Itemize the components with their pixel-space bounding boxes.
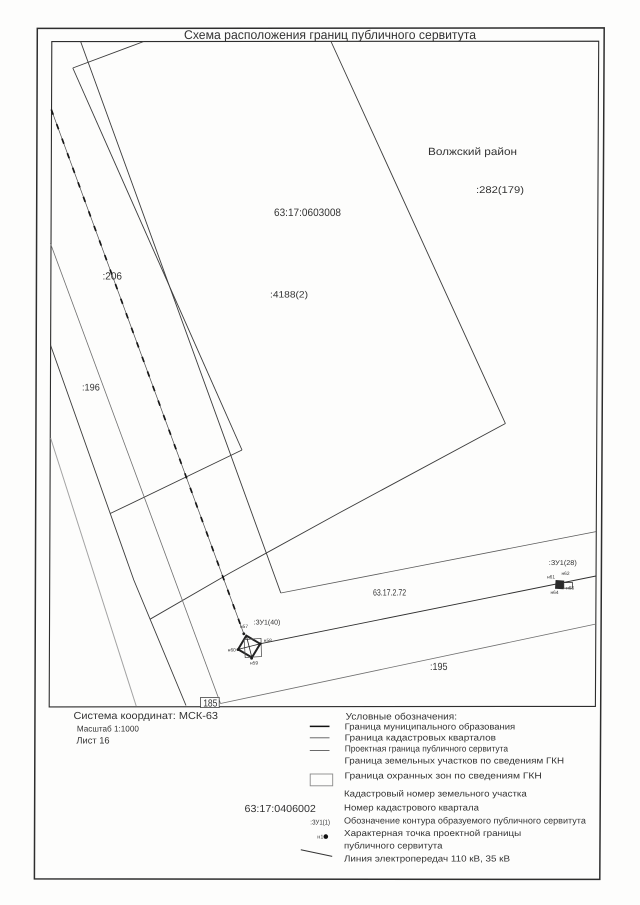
svg-text:н60: н60 [228,648,236,654]
svg-text:Волжский район: Волжский район [428,146,517,158]
svg-text:Граница муниципального образов: Граница муниципального образования [345,721,516,731]
svg-text:н64: н64 [551,590,559,596]
svg-text::ЗУ1(28): :ЗУ1(28) [549,559,577,567]
svg-text:Условные обозначения:: Условные обозначения: [346,710,457,721]
svg-text:н1: н1 [317,835,323,841]
svg-text:63.17.2.72: 63.17.2.72 [373,587,406,597]
svg-text:н57: н57 [240,624,248,630]
svg-text:63:17:0603008: 63:17:0603008 [274,207,341,219]
svg-text:Граница земельных участков по: Граница земельных участков по сведениям … [345,756,565,766]
svg-text:н59: н59 [250,661,258,667]
svg-text:Проектная граница публичного с: Проектная граница публичного сервитута [345,743,508,753]
svg-text::196: :196 [82,382,100,393]
svg-text:н58: н58 [264,638,272,644]
svg-text::ЗУ1(1): :ЗУ1(1) [310,819,330,827]
svg-text:Линия электропередач 110 кВ, 3: Линия электропередач 110 кВ, 35 кВ [344,853,510,863]
svg-text:63:17:0406002: 63:17:0406002 [245,804,317,815]
svg-text::195: :195 [430,662,448,673]
svg-text:н61: н61 [547,575,555,581]
svg-text::206: :206 [103,272,123,283]
svg-text:н62: н62 [562,571,570,577]
svg-text:н63: н63 [566,586,574,592]
svg-text:публичного сервитута: публичного сервитута [344,841,443,851]
svg-text:Характерная точка проектной гр: Характерная точка проектной границы [344,828,521,838]
svg-text:Схема расположения границ публ: Схема расположения границ публичного сер… [184,28,476,42]
svg-text:Граница кадастровых кварталов: Граница кадастровых кварталов [345,732,497,742]
svg-text::4188(2): :4188(2) [270,289,308,299]
svg-text::ЗУ1(40): :ЗУ1(40) [254,618,281,626]
svg-text:Система координат: МСК-63: Система координат: МСК-63 [74,711,219,722]
svg-text:185: 185 [203,698,217,709]
svg-text:Номер кадастрового квартала: Номер кадастрового квартала [344,803,479,813]
svg-text:Обозначение контура образуемог: Обозначение контура образуемого публично… [344,816,586,826]
svg-text:Граница охранных зон по сведен: Граница охранных зон по сведениям ГКН [345,770,542,780]
svg-text:Лист 16: Лист 16 [76,736,109,746]
svg-text:Масштаб 1:1000: Масштаб 1:1000 [77,723,139,733]
svg-text:Кадастровый номер земельного у: Кадастровый номер земельного участка [344,789,527,799]
svg-text::282(179): :282(179) [476,185,524,196]
